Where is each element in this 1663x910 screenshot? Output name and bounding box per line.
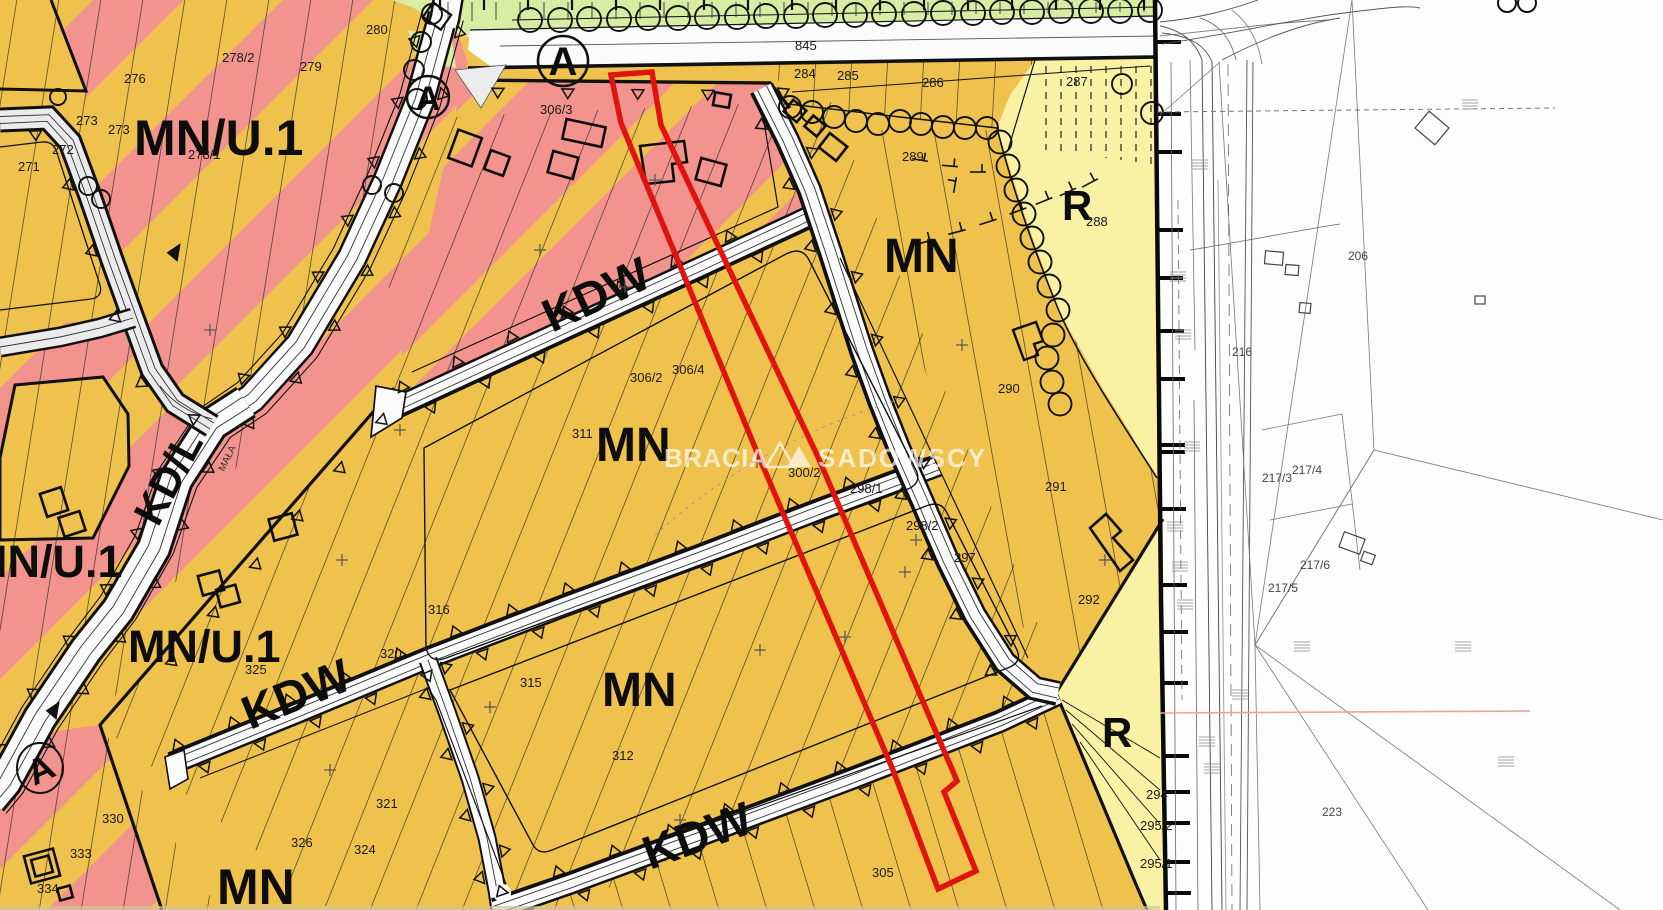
svg-text:271: 271: [18, 159, 40, 174]
svg-text:217/6: 217/6: [1300, 558, 1330, 572]
svg-text:306/2: 306/2: [630, 370, 663, 385]
svg-text:MN: MN: [596, 419, 671, 472]
svg-text:325: 325: [245, 662, 267, 677]
svg-text:306/3: 306/3: [540, 102, 573, 117]
svg-text:311: 311: [572, 426, 593, 441]
svg-text:MN: MN: [217, 859, 295, 910]
svg-text:278/2: 278/2: [222, 50, 255, 65]
svg-text:206: 206: [1348, 249, 1368, 263]
svg-text:320: 320: [380, 646, 402, 661]
svg-text:273: 273: [76, 113, 98, 128]
svg-text:216: 216: [1232, 345, 1252, 359]
svg-text:280: 280: [366, 22, 388, 37]
svg-text:MN: MN: [884, 230, 959, 283]
svg-text:R: R: [1102, 709, 1132, 756]
svg-text:333: 333: [70, 846, 92, 861]
svg-text:330: 330: [102, 811, 124, 826]
svg-text:294: 294: [1146, 787, 1168, 802]
svg-text:845: 845: [795, 38, 817, 53]
svg-text:295/1: 295/1: [1140, 856, 1173, 871]
svg-text:315: 315: [520, 675, 542, 690]
svg-text:217/3: 217/3: [1262, 471, 1292, 485]
svg-text:217/5: 217/5: [1268, 581, 1298, 595]
svg-text:306/4: 306/4: [672, 362, 705, 377]
svg-text:MN: MN: [602, 664, 677, 717]
svg-text:MN/U.1: MN/U.1: [0, 536, 123, 587]
svg-text:273: 273: [108, 122, 130, 137]
svg-text:A: A: [416, 80, 441, 118]
svg-text:295/2: 295/2: [1140, 818, 1173, 833]
svg-text:324: 324: [354, 842, 376, 857]
svg-text:290: 290: [998, 381, 1020, 396]
svg-text:272: 272: [52, 142, 74, 157]
svg-text:SADOWSCY: SADOWSCY: [818, 443, 987, 473]
svg-text:279: 279: [300, 59, 322, 74]
svg-text:292: 292: [1078, 592, 1100, 607]
svg-text:334: 334: [37, 881, 59, 896]
svg-text:287: 287: [1066, 74, 1088, 89]
svg-text:284: 284: [794, 66, 816, 81]
svg-text:278/1: 278/1: [188, 147, 221, 162]
svg-text:316: 316: [428, 602, 450, 617]
svg-text:289: 289: [902, 149, 924, 164]
svg-text:223: 223: [1322, 805, 1342, 819]
svg-text:291: 291: [1045, 479, 1067, 494]
svg-text:321: 321: [376, 796, 398, 811]
svg-text:286: 286: [922, 75, 944, 90]
svg-text:A: A: [549, 40, 578, 84]
svg-text:298/2: 298/2: [906, 518, 939, 533]
svg-text:305: 305: [872, 865, 894, 880]
svg-text:326: 326: [291, 835, 313, 850]
svg-text:276: 276: [124, 71, 146, 86]
svg-text:285: 285: [837, 68, 859, 83]
svg-text:BRACIA: BRACIA: [664, 443, 768, 473]
svg-text:288: 288: [1086, 214, 1108, 229]
svg-text:297: 297: [954, 550, 976, 565]
svg-text:217/4: 217/4: [1292, 463, 1322, 477]
svg-text:298/1: 298/1: [850, 481, 883, 496]
svg-text:312: 312: [612, 748, 634, 763]
